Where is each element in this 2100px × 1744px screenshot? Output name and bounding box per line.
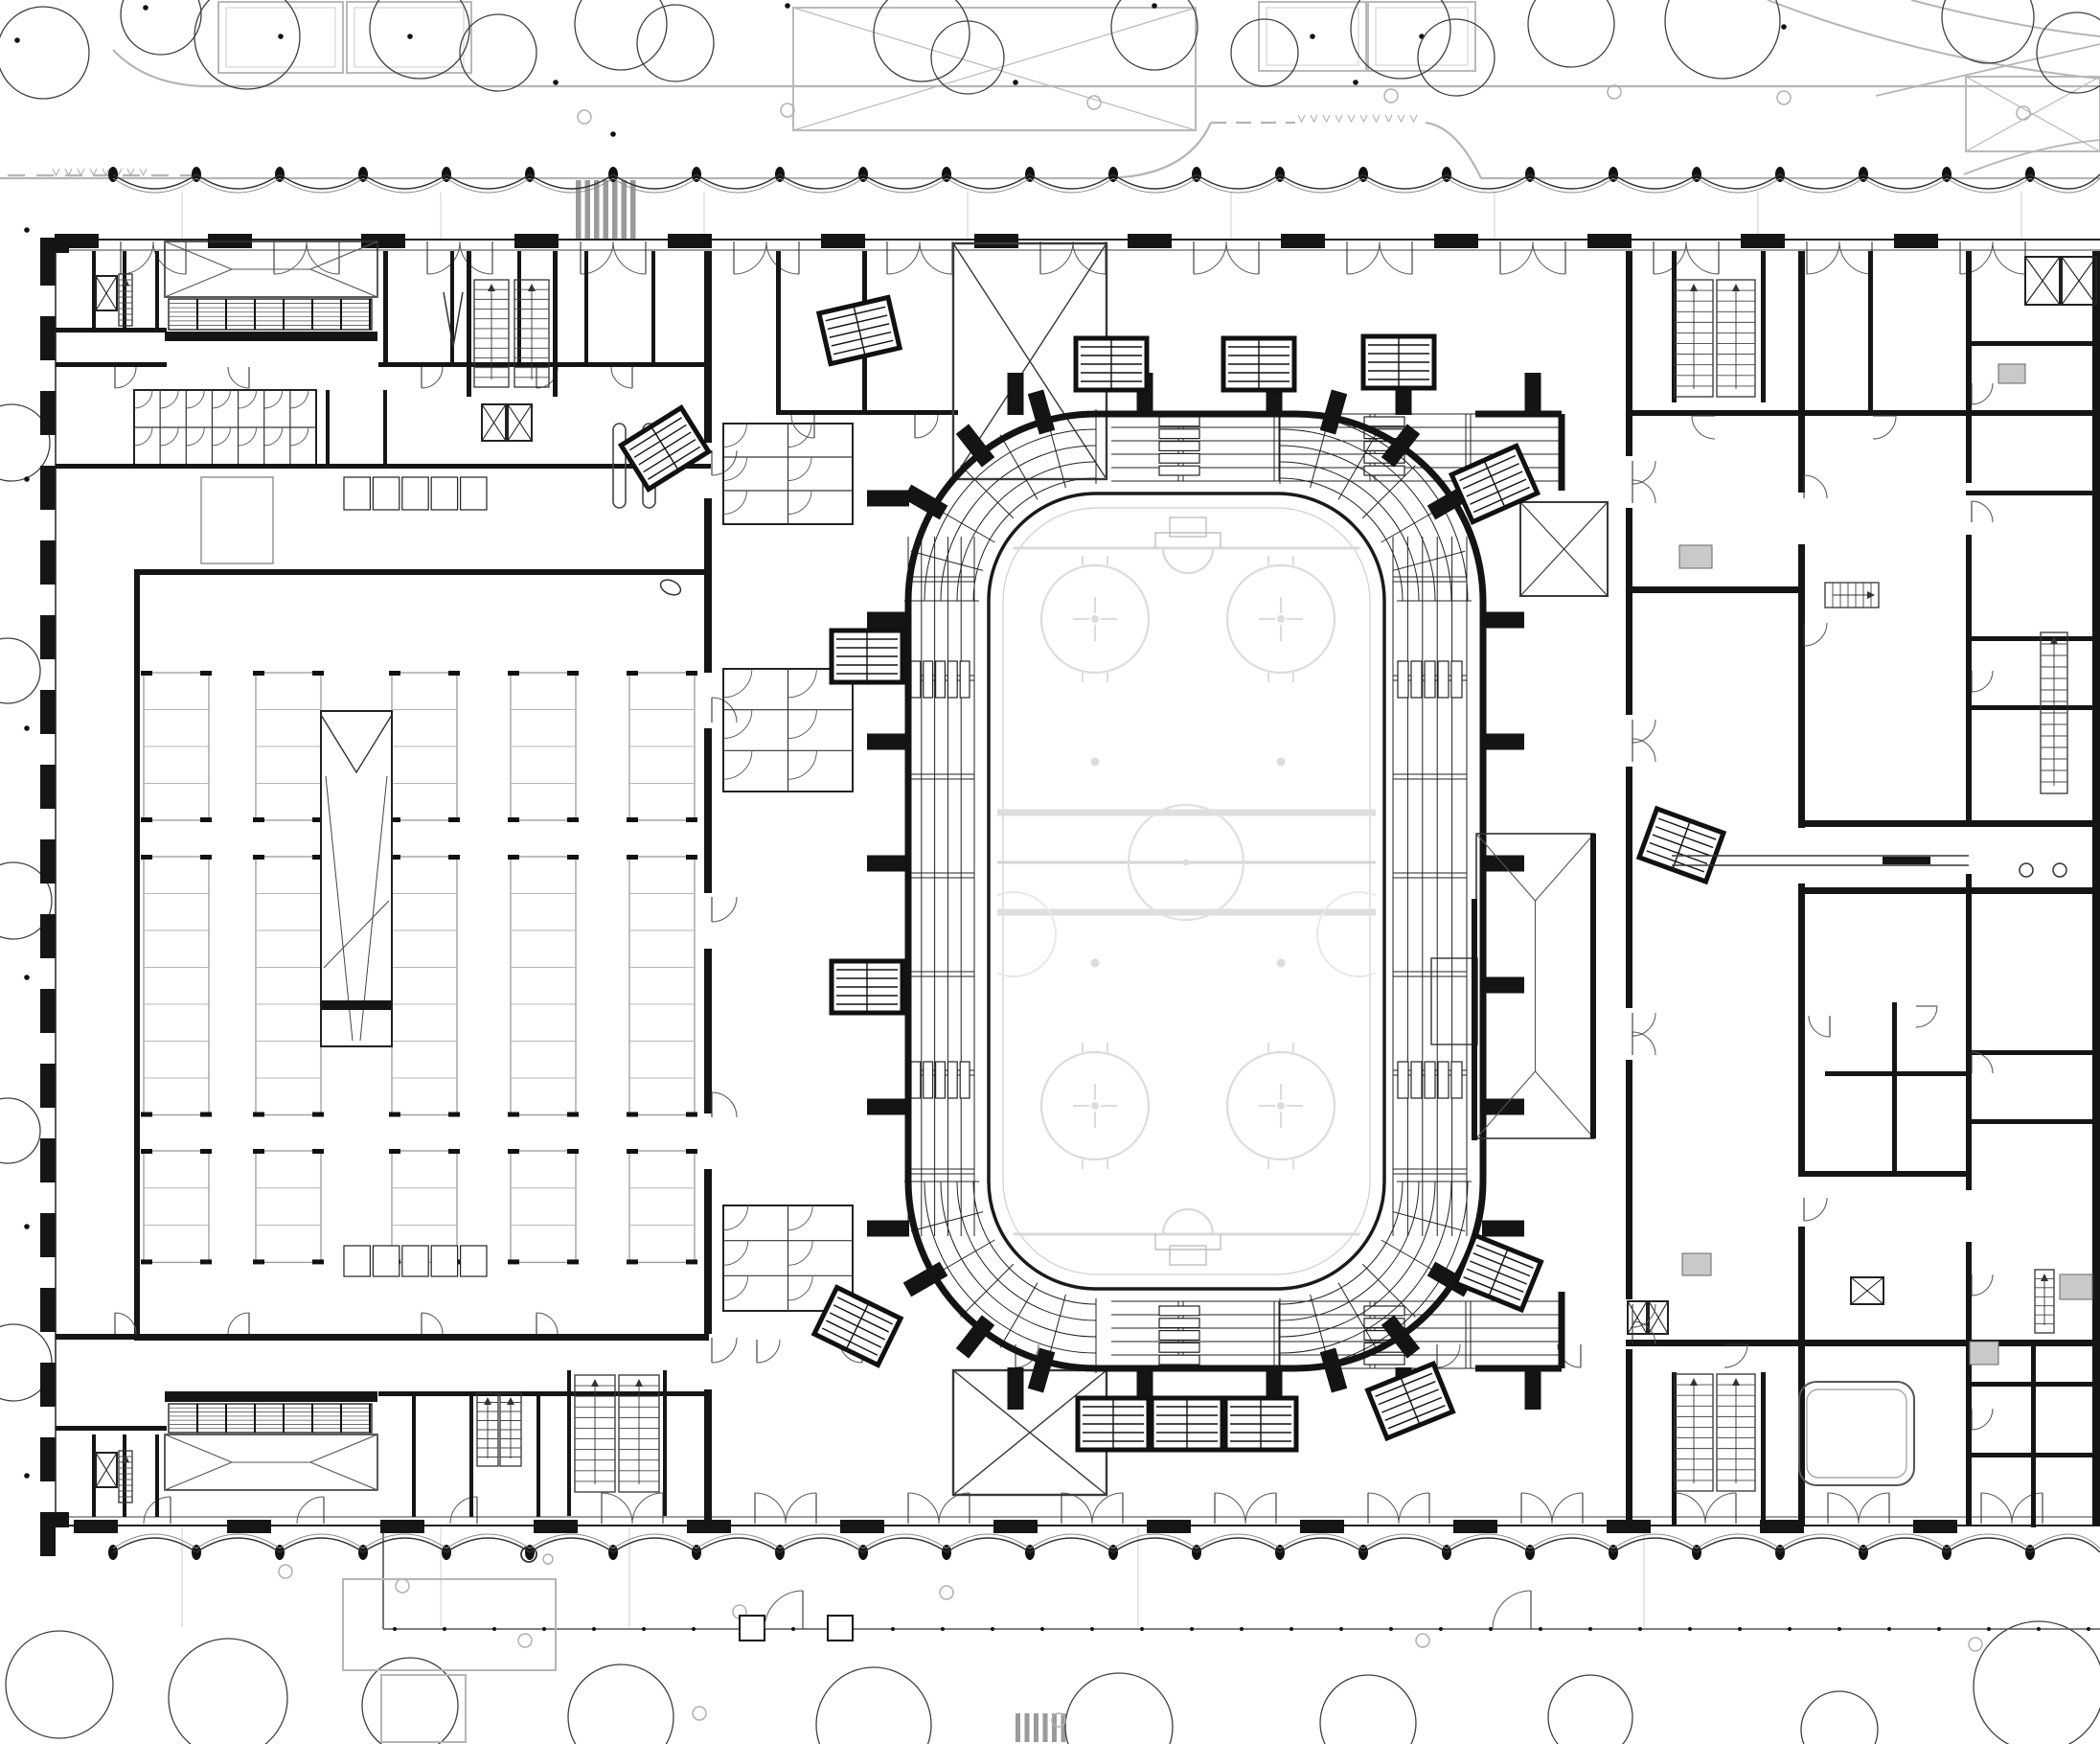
- left-wing-south: [56, 1313, 709, 1517]
- bench-seating-icon: [1225, 1398, 1296, 1450]
- site-parking-stalls: [218, 2, 2100, 151]
- site-fence-and-plaza: [343, 1527, 2100, 1742]
- bench-seating-icon: [1456, 1235, 1541, 1310]
- bench-seating-icon: [1076, 338, 1147, 390]
- bench-seating-icon: [1363, 336, 1434, 388]
- bench-seating-icon: [814, 1288, 901, 1365]
- left-wing-north: [56, 241, 711, 598]
- bench-seating-icon: [1152, 1398, 1222, 1450]
- bench-seating-icon: [1368, 1364, 1453, 1438]
- bench-seating-icon: [1223, 338, 1294, 390]
- bench-seating-icon: [832, 631, 902, 682]
- parking-garage: [134, 569, 709, 1341]
- ice-rink-boards: [989, 493, 1384, 1289]
- ice-rink-markings: [971, 517, 1402, 1265]
- rink-side-pavilion: [1431, 545, 1712, 1275]
- right-wing: [1626, 251, 2100, 1527]
- bench-seating-icon: [621, 407, 708, 489]
- bench-seating-icon: [1639, 809, 1723, 882]
- site-trees: [0, 0, 2100, 1744]
- floor-plan-canvas: [0, 0, 2100, 1744]
- site-roads: [0, 0, 2100, 1742]
- bench-seating-icon: [819, 297, 900, 363]
- bench-seating-icon: [1451, 446, 1538, 521]
- bench-seating-icon: [832, 961, 902, 1013]
- bench-seating-icon: [1078, 1398, 1149, 1450]
